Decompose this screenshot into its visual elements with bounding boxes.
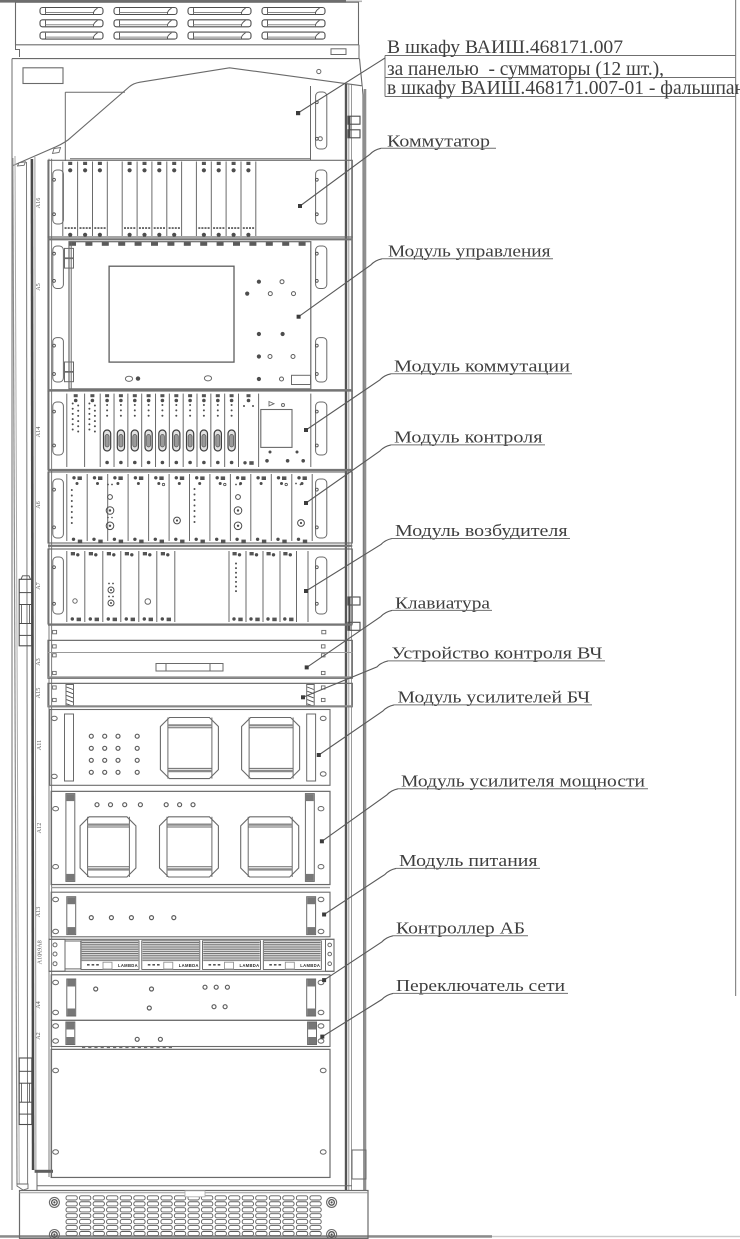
svg-text:А15: А15 [35,688,42,699]
svg-text:А13: А13 [35,907,42,918]
svg-text:LAMBDA: LAMBDA [240,963,260,968]
svg-text:А11: А11 [36,740,43,750]
svg-text:LAMBDA: LAMBDA [118,963,138,968]
svg-text:Клавиатура: Клавиатура [395,593,491,612]
svg-text:А10: А10 [37,954,44,965]
svg-text:Коммутатор: Коммутатор [387,131,490,150]
svg-text:Переключатель сети: Переключатель сети [396,976,565,995]
svg-text:А3: А3 [35,658,42,666]
svg-text:Модуль усилителей БЧ: Модуль усилителей БЧ [398,688,591,707]
svg-text:Модуль контроля: Модуль контроля [394,428,543,447]
svg-text:А2: А2 [35,1032,42,1040]
svg-text:А6: А6 [35,501,42,509]
svg-text:Модуль коммутации: Модуль коммутации [394,356,570,375]
svg-text:Устройство контроля ВЧ: Устройство контроля ВЧ [392,644,603,663]
svg-text:А14: А14 [35,427,42,438]
svg-text:А12: А12 [36,823,43,834]
svg-text:Модуль питания: Модуль питания [399,851,538,870]
svg-text:А16: А16 [35,198,42,209]
svg-text:А8: А8 [37,940,44,948]
svg-text:Контроллер АБ: Контроллер АБ [396,918,525,937]
svg-text:А4: А4 [35,1001,42,1009]
svg-text:Модуль возбудителя: Модуль возбудителя [395,521,568,540]
svg-text:А5: А5 [35,283,42,291]
svg-text:Модуль усилителя мощности: Модуль усилителя мощности [401,771,645,790]
svg-text:А7: А7 [35,582,42,590]
svg-text:LAMBDA: LAMBDA [300,963,320,968]
svg-text:LAMBDA: LAMBDA [179,963,199,968]
svg-text:Модуль управления: Модуль управления [388,241,551,260]
svg-text:В шкафу ВАИШ.468171.007: В шкафу ВАИШ.468171.007 [387,37,623,58]
svg-text:в шкафу ВАИШ.468171.007-01 - ф: в шкафу ВАИШ.468171.007-01 - фальшпан [387,77,740,99]
